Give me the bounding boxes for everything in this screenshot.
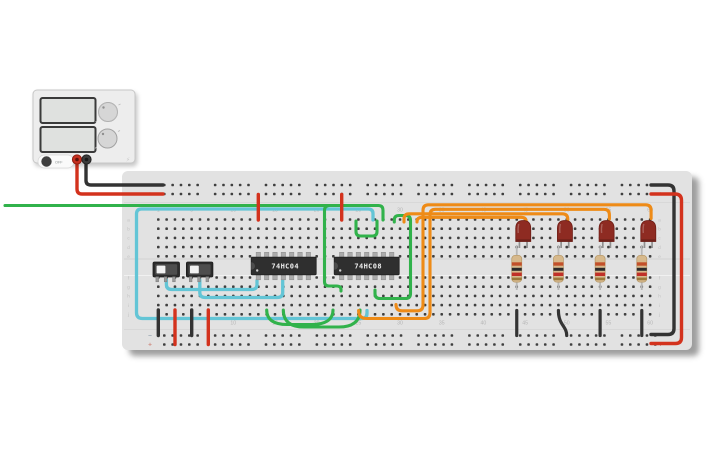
- column-label: 40: [481, 321, 487, 327]
- resistor-band: [595, 278, 605, 281]
- resistor-band: [553, 278, 563, 281]
- circuit-canvas: 1155101015152020252530303535404045455050…: [0, 0, 725, 453]
- row-letter: h: [127, 294, 130, 299]
- row-letter: e: [127, 254, 130, 259]
- row-letter: d: [658, 245, 661, 250]
- led-highlight: [560, 224, 561, 233]
- row-letter: a: [658, 217, 661, 222]
- switch-pin: [156, 277, 159, 282]
- negative-terminal[interactable]: [82, 155, 91, 164]
- column-label: 35: [439, 321, 445, 327]
- row-letter: g: [127, 285, 130, 290]
- row-letter: b: [127, 227, 130, 232]
- rail-negative-label: −: [148, 333, 152, 340]
- voltage-display: [41, 98, 96, 123]
- power-knob-icon[interactable]: [41, 156, 51, 166]
- power-button-label: OFF: [55, 160, 63, 164]
- resistor[interactable]: [637, 255, 647, 282]
- circuit-scene: 1155101015152020252530303535404045455050…: [0, 0, 725, 453]
- rail-positive-label: +: [148, 342, 152, 349]
- current-display: [41, 127, 96, 152]
- resistor-band: [553, 273, 563, 276]
- resistor-band: [595, 262, 605, 265]
- power-supply[interactable]: OFF ⚡: [33, 90, 135, 168]
- ic-label: 74HC08: [354, 263, 382, 271]
- power-bolt-icon: ⚡: [126, 157, 130, 164]
- row-letter: b: [658, 227, 661, 232]
- led-highlight: [518, 224, 519, 233]
- switch-pin: [189, 277, 192, 282]
- switch-slider[interactable]: [190, 266, 199, 274]
- column-label: 55: [606, 321, 612, 327]
- ic-pin1-dot: [256, 269, 258, 271]
- row-letter: e: [658, 254, 661, 259]
- resistor-band: [637, 278, 647, 281]
- switch-pin: [206, 277, 209, 282]
- led-flange: [641, 239, 656, 241]
- knob-indicator-dot: [102, 106, 104, 108]
- switch-pin: [164, 277, 167, 282]
- resistor-band: [637, 262, 647, 265]
- row-letter: a: [127, 217, 130, 222]
- resistor-band: [512, 273, 522, 276]
- knob-indicator-dot: [102, 133, 104, 135]
- switch-slider[interactable]: [157, 266, 166, 274]
- row-letter: g: [658, 285, 661, 290]
- resistor-band: [595, 273, 605, 276]
- led-highlight: [601, 224, 602, 233]
- resistor-band: [595, 268, 605, 271]
- row-letter: d: [127, 245, 130, 250]
- led-flange: [557, 239, 572, 241]
- resistor[interactable]: [595, 255, 605, 282]
- resistor-band: [637, 268, 647, 271]
- column-label: 30: [397, 208, 403, 214]
- resistor-band: [512, 268, 522, 271]
- led-flange: [599, 239, 614, 241]
- row-letter: j: [658, 312, 660, 317]
- resistor-band: [637, 273, 647, 276]
- column-label: 45: [522, 321, 528, 327]
- positive-terminal[interactable]: [72, 155, 81, 164]
- row-letter: i: [128, 303, 129, 308]
- ic-label: 74HC04: [271, 263, 299, 271]
- led-highlight: [643, 224, 644, 233]
- resistor-band: [553, 268, 563, 271]
- resistor-band: [553, 262, 563, 265]
- ic-chip[interactable]: 74HC08: [334, 252, 399, 280]
- power-button[interactable]: OFF: [38, 155, 74, 168]
- led-flange: [516, 239, 531, 241]
- column-label: 60: [647, 321, 653, 327]
- row-letter: j: [127, 312, 129, 317]
- row-letter: h: [658, 294, 661, 299]
- switch-pin: [173, 277, 176, 282]
- switch-pin: [198, 277, 201, 282]
- ic-pin1-dot: [339, 269, 341, 271]
- resistor[interactable]: [553, 255, 563, 282]
- row-letter: i: [659, 303, 660, 308]
- column-label: 10: [230, 321, 236, 327]
- resistor[interactable]: [512, 255, 522, 282]
- resistor-band: [512, 278, 522, 281]
- resistor-band: [512, 262, 522, 265]
- column-label: 30: [397, 321, 403, 327]
